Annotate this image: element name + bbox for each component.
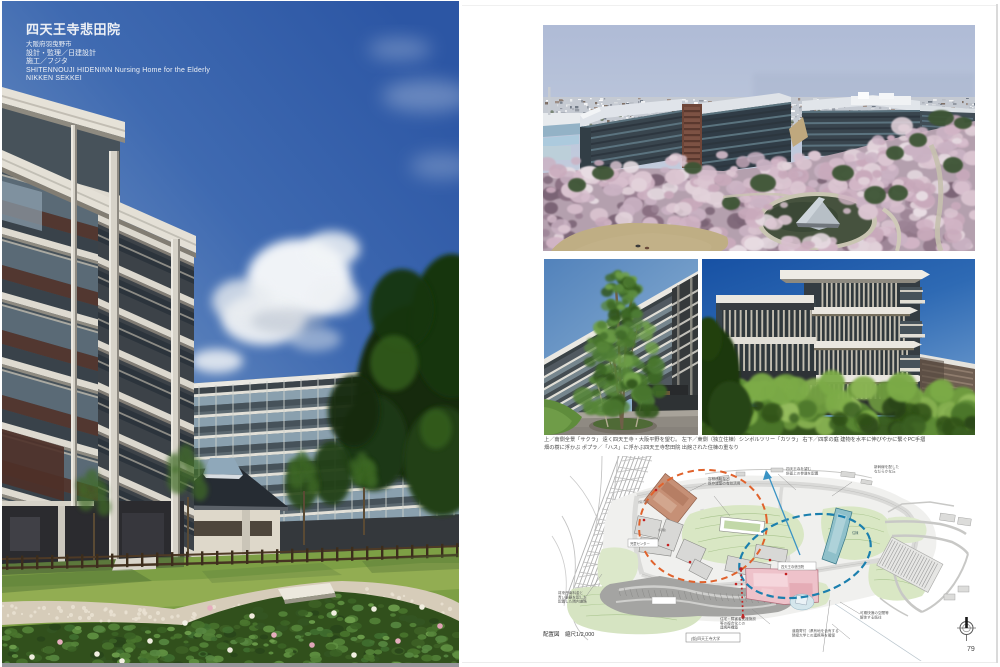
svg-text:住宅・障害者支援施設: 住宅・障害者支援施設 [720,616,756,621]
svg-text:連携再構築: 連携再構築 [720,625,738,630]
svg-text:解体する既往: 解体する既往 [860,614,882,619]
svg-text:可期快適の空間等: 可期快適の空間等 [860,610,889,615]
svg-text:等の複合化との: 等の複合化との [720,620,746,625]
svg-text:四天王寺を望む: 四天王寺を望む [786,466,812,471]
svg-text:新幹線を配した: 新幹線を配した [874,464,900,469]
svg-text:(保育所): (保育所) [638,499,649,504]
svg-text:容積移転など: 容積移転など [708,476,730,481]
svg-text:住棟: 住棟 [852,530,859,535]
svg-text:四天王寺悲田院: 四天王寺悲田院 [781,564,805,569]
svg-text:なだらかな丘: なだらかな丘 [874,468,896,473]
svg-text:将来西南料金と: 将来西南料金と [558,590,584,595]
svg-text:児童センター: 児童センター [630,541,650,546]
svg-text:斜面上の参道を配置: 斜面上の参道を配置 [786,470,819,475]
svg-text:配置した隣内道路: 配置した隣内道路 [558,599,587,604]
svg-text:既存建築の有効活用: 既存建築の有効活用 [708,480,741,485]
svg-text:(特養): (特養) [658,527,666,532]
svg-text:隣接大学との連携等を確保: 隣接大学との連携等を確保 [792,632,835,637]
svg-text:(仮)四天王寺大学: (仮)四天王寺大学 [691,636,720,641]
svg-text:道路寄付（県有地を含有する: 道路寄付（県有地を含有する [792,628,839,633]
svg-text:青い景観を配した: 青い景観を配した [558,594,587,599]
